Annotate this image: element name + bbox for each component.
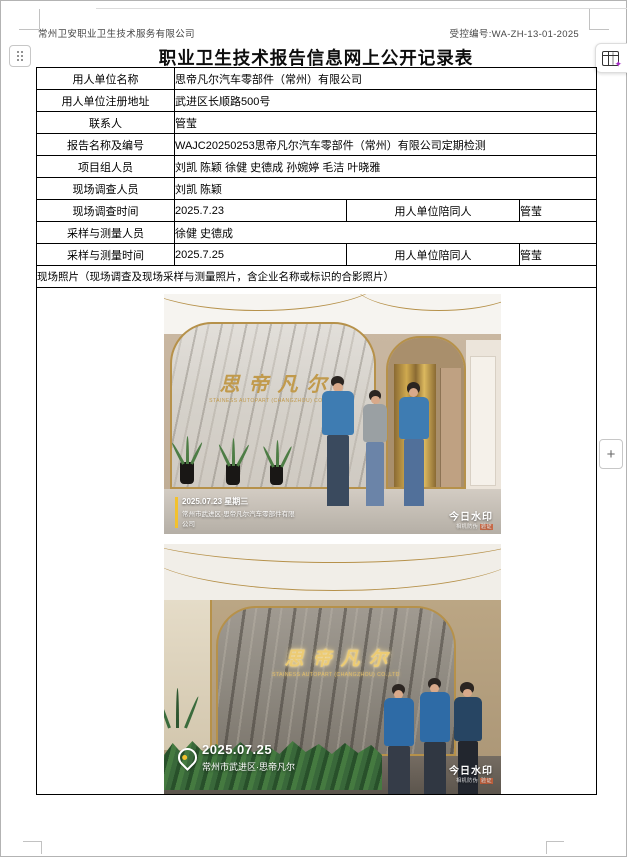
project-team-value: 刘凯 陈颖 徐健 史德成 孙婉婷 毛洁 叶晓雅 [175,156,597,178]
contact-label: 联系人 [37,112,175,134]
survey-date-value: 2025.7.23 [175,200,347,222]
survey-staff-label: 现场调查人员 [37,178,175,200]
sampling-date-value: 2025.7.25 [175,244,347,266]
report-number-label: 报告名称及编号 [37,134,175,156]
page-top-edge [96,8,627,9]
contact-value: 管莹 [175,112,597,134]
person-male-blue-jacket [319,376,357,510]
company-wall-sign: 思帝凡尔 [218,644,454,671]
employer-name-label: 用人单位名称 [37,68,175,90]
table-extract-icon: ✦ [602,51,619,66]
document-header: 常州卫安职业卫生技术服务有限公司 受控编号:WA-ZH-13-01-2025 [38,26,579,40]
watermark-date: 2025.07.23 星期三 [182,496,248,507]
watermark-location-2: 公司 [182,518,195,528]
table-row: 用人单位注册地址武进区长顺路500号 [37,90,597,112]
sampling-date-label: 采样与测量时间 [37,244,175,266]
employer-name-value: 思帝凡尔汽车零部件（常州）有限公司 [175,68,597,90]
company-name-header: 常州卫安职业卫生技术服务有限公司 [38,26,195,40]
watermark-app-logo: 今日水印 相机防伪 验证 [449,762,493,784]
report-number-value: WAJC20250253思帝凡尔汽车零部件（常州）有限公司定期检测 [175,134,597,156]
record-table: 用人单位名称思帝凡尔汽车零部件（常州）有限公司 用人单位注册地址武进区长顺路50… [36,67,597,795]
watermark-app-logo: 今日水印 相机防伪 验证 [449,508,493,530]
person-female-grey-top [359,390,391,510]
escort-value: 管莹 [520,200,597,222]
control-number: 受控编号:WA-ZH-13-01-2025 [450,26,579,40]
watermark-accent-bar [175,497,178,528]
white-door [470,356,496,486]
site-photo-2: 思帝凡尔 STAINESS AUTOPART (CHANGZHOU) CO.,L… [164,544,501,794]
sampling-staff-label: 采样与测量人员 [37,222,175,244]
person-blue-jacket [382,684,416,794]
zoom-in-button[interactable]: + [599,439,623,469]
inner-door [440,368,461,487]
survey-staff-value: 刘凯 陈颖 [175,178,597,200]
watermark-location: 常州市武进区·思帝凡尔 [202,760,295,773]
watermark-location: 常州市武进区·思帝凡尔汽车零部件有限 [182,508,295,518]
gear-icon: ✦ [614,60,622,69]
drag-handle-icon [17,51,24,62]
escort-label: 用人单位陪同人 [347,200,520,222]
person-blue-jacket [418,678,452,794]
drag-handle-button[interactable] [9,45,31,67]
site-photo-1: 思帝凡尔 STAINESS AUTOPART (CHANGZHOU) CO.,L… [164,294,501,534]
escort-label: 用人单位陪同人 [347,244,520,266]
table-row: 现场调查时间 2025.7.23 用人单位陪同人 管莹 [37,200,597,222]
table-row: 报告名称及编号WAJC20250253思帝凡尔汽车零部件（常州）有限公司定期检测 [37,134,597,156]
table-extract-extension-button[interactable]: ✦ [595,43,627,73]
employer-address-value: 武进区长顺路500号 [175,90,597,112]
sampling-staff-value: 徐健 史德成 [175,222,597,244]
photos-header: 现场照片（现场调查及现场采样与测量照片，含企业名称或标识的合影照片） [37,266,597,288]
watermark-date: 2025.07.25 [202,742,272,757]
table-row: 采样与测量人员徐健 史德成 [37,222,597,244]
document-viewer: { "window": { "header_left": "常州卫安职业卫生技术… [0,0,627,857]
survey-date-label: 现场调查时间 [37,200,175,222]
photos-cell: 思帝凡尔 STAINESS AUTOPART (CHANGZHOU) CO.,L… [37,288,597,795]
company-wall-sign-en: STAINESS AUTOPART (CHANGZHOU) CO.,LTD [236,672,437,677]
window [164,600,212,750]
table-row: 现场调查人员刘凯 陈颖 [37,178,597,200]
table-row: 思帝凡尔 STAINESS AUTOPART (CHANGZHOU) CO.,L… [37,288,597,795]
table-row: 用人单位名称思帝凡尔汽车零部件（常州）有限公司 [37,68,597,90]
person-female-blue-jacket [396,382,432,510]
table-row: 现场照片（现场调查及现场采样与测量照片，含企业名称或标识的合影照片） [37,266,597,288]
employer-address-label: 用人单位注册地址 [37,90,175,112]
escort-value: 管莹 [520,244,597,266]
project-team-label: 项目组人员 [37,156,175,178]
table-row: 联系人管莹 [37,112,597,134]
table-row: 项目组人员刘凯 陈颖 徐健 史德成 孙婉婷 毛洁 叶晓雅 [37,156,597,178]
table-row: 采样与测量时间 2025.7.25 用人单位陪同人 管莹 [37,244,597,266]
